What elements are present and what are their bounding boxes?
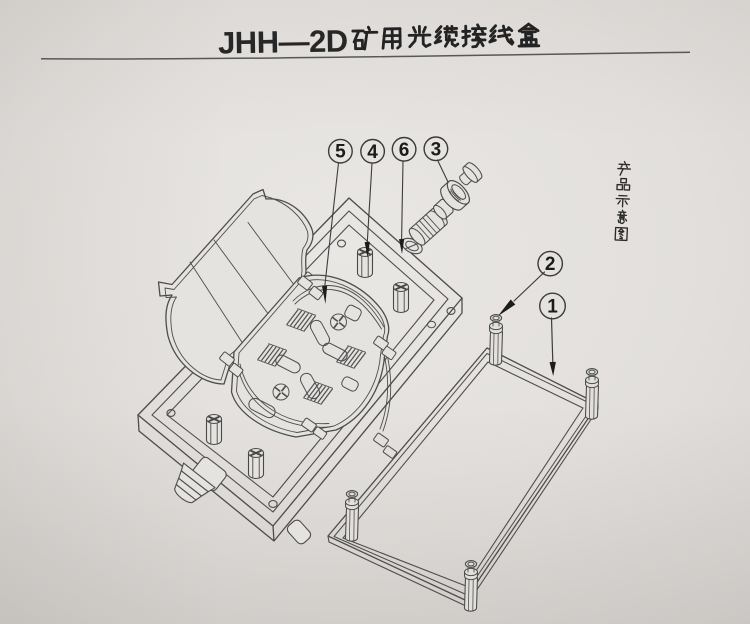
svg-text:3: 3	[431, 139, 442, 160]
svg-text:5: 5	[335, 142, 346, 163]
svg-text:1: 1	[547, 297, 558, 318]
svg-text:4: 4	[367, 142, 378, 163]
svg-text:JHH—2D: JHH—2D	[218, 23, 348, 60]
svg-text:6: 6	[399, 140, 410, 161]
svg-text:2: 2	[545, 254, 556, 275]
